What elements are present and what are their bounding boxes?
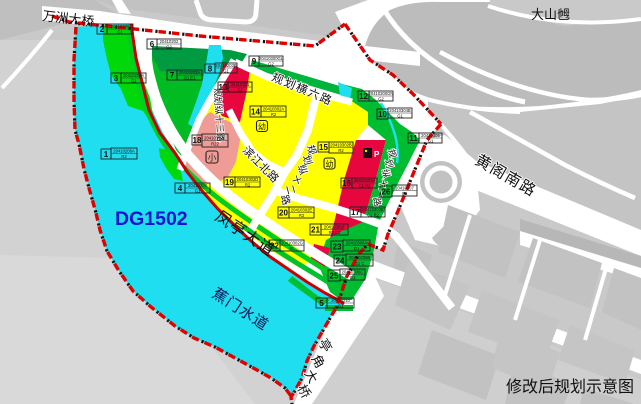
svg-text:RL: RL xyxy=(289,246,295,251)
svg-text:24: 24 xyxy=(336,257,345,266)
svg-text:22: 22 xyxy=(270,242,279,251)
svg-text:20410302E: 20410302E xyxy=(291,208,313,213)
svg-text:20410204A: 20410204A xyxy=(123,73,145,78)
svg-text:1: 1 xyxy=(104,150,109,159)
svg-text:20410306C: 20410306C xyxy=(342,270,364,275)
svg-text:6: 6 xyxy=(150,40,155,49)
svg-text:20410302D: 20410302D xyxy=(237,177,259,182)
svg-text:20410208: 20410208 xyxy=(188,183,207,188)
svg-text:20410301: 20410301 xyxy=(231,82,250,87)
svg-text:DG1502: DG1502 xyxy=(115,208,188,230)
svg-text:20410203A: 20410203A xyxy=(179,70,201,75)
svg-text:大山乸: 大山乸 xyxy=(531,7,570,22)
svg-text:26: 26 xyxy=(382,188,391,197)
svg-text:G2: G2 xyxy=(378,97,384,102)
svg-text:7: 7 xyxy=(170,71,175,80)
svg-text:G1: G1 xyxy=(428,139,434,144)
svg-text:G1: G1 xyxy=(223,69,229,74)
svg-text:20410305: 20410305 xyxy=(421,133,440,138)
svg-text:20410306A: 20410306A xyxy=(346,241,368,246)
svg-text:9: 9 xyxy=(252,57,257,66)
svg-text:C2 R2: C2 R2 xyxy=(367,213,380,218)
svg-text:修改后规划示意图: 修改后规划示意图 xyxy=(506,377,634,396)
svg-text:20410300GN: 20410300GN xyxy=(369,91,394,96)
svg-text:G2: G2 xyxy=(166,45,172,50)
svg-text:20410302B: 20410302B xyxy=(330,143,352,148)
svg-text:G1: G1 xyxy=(338,304,344,309)
svg-text:R2: R2 xyxy=(299,213,305,218)
svg-text:P: P xyxy=(374,150,380,159)
svg-text:3: 3 xyxy=(114,74,119,83)
svg-text:20410203B: 20410203B xyxy=(215,63,237,68)
svg-text:20410210: 20410210 xyxy=(331,298,350,303)
svg-text:20410306B: 20410306B xyxy=(349,255,371,260)
svg-text:2: 2 xyxy=(100,25,105,34)
svg-text:R2: R2 xyxy=(121,154,127,159)
svg-text:20: 20 xyxy=(279,209,288,218)
svg-text:20410307: 20410307 xyxy=(395,186,414,191)
svg-text:20410302C: 20410302C xyxy=(204,136,226,141)
svg-text:幼: 幼 xyxy=(258,122,266,132)
svg-text:R22: R22 xyxy=(211,142,219,147)
svg-text:11: 11 xyxy=(409,134,418,143)
svg-text:12: 12 xyxy=(359,92,368,101)
svg-text:小: 小 xyxy=(208,153,217,163)
svg-text:G1: G1 xyxy=(117,30,123,35)
svg-text:19: 19 xyxy=(225,178,234,187)
svg-text:R2: R2 xyxy=(271,112,277,117)
svg-text:C2 R2: C2 R2 xyxy=(359,184,372,189)
svg-text:15: 15 xyxy=(319,143,328,152)
svg-text:20410304B: 20410304B xyxy=(389,108,411,113)
svg-text:C2: C2 xyxy=(237,88,243,93)
svg-text:G1: G1 xyxy=(131,79,137,84)
svg-text:G1 C: G1 C xyxy=(355,261,365,266)
svg-text:4: 4 xyxy=(178,184,183,193)
svg-text:21: 21 xyxy=(311,226,320,235)
svg-text:20410302G: 20410302G xyxy=(281,241,303,246)
svg-text:R2: R2 xyxy=(338,148,344,153)
svg-text:G2: G2 xyxy=(268,62,274,67)
svg-text:14: 14 xyxy=(251,108,260,117)
svg-text:幼: 幼 xyxy=(326,159,334,169)
svg-text:23: 23 xyxy=(333,243,342,252)
svg-text:G1: G1 xyxy=(350,275,356,280)
svg-text:5: 5 xyxy=(319,299,324,308)
svg-text:G1: G1 xyxy=(195,189,201,194)
svg-text:20410302F: 20410302F xyxy=(324,225,346,230)
svg-text:25: 25 xyxy=(330,272,339,281)
svg-text:G1: G1 xyxy=(397,114,403,119)
svg-text:10: 10 xyxy=(378,110,387,119)
svg-text:20410303A: 20410303A xyxy=(354,178,376,183)
svg-text:G1: G1 xyxy=(402,191,408,196)
svg-text:R2 C2: R2 C2 xyxy=(329,230,342,235)
svg-text:G1: G1 xyxy=(354,246,360,251)
svg-text:20410303B: 20410303B xyxy=(362,207,384,212)
svg-text:R2: R2 xyxy=(245,183,251,188)
svg-text:20410202: 20410202 xyxy=(160,39,179,44)
svg-text:13: 13 xyxy=(219,83,228,92)
svg-text:8: 8 xyxy=(208,65,213,74)
svg-text:20410300GL: 20410300GL xyxy=(259,56,284,61)
svg-text:20410206A: 20410206A xyxy=(113,149,135,154)
svg-text:20410205: 20410205 xyxy=(111,24,130,29)
svg-text:16: 16 xyxy=(342,179,351,188)
svg-text:20410302A: 20410302A xyxy=(263,107,285,112)
svg-text:G1 E1: G1 E1 xyxy=(184,76,197,81)
svg-text:17: 17 xyxy=(351,208,360,217)
svg-text:18: 18 xyxy=(193,136,202,145)
